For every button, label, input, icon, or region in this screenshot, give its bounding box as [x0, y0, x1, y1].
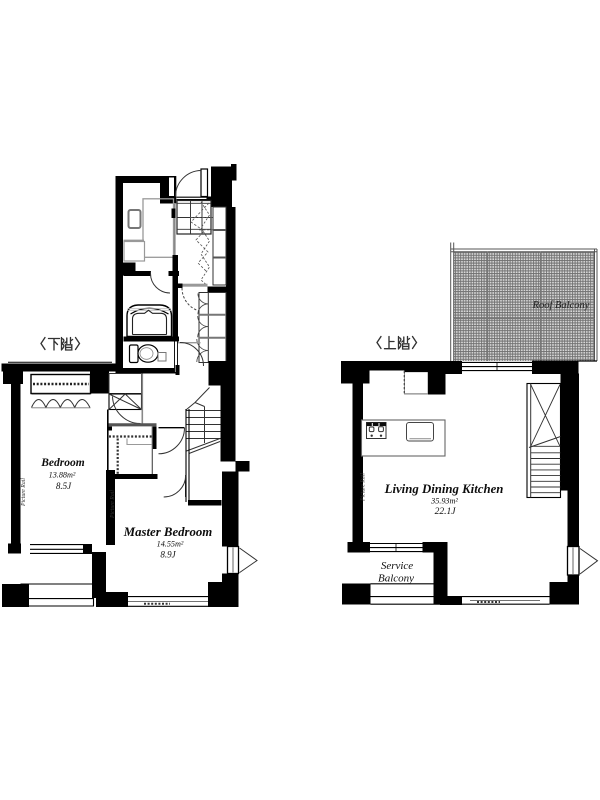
svg-text:Roof Balcony: Roof Balcony [532, 300, 590, 311]
svg-text:Living Dining Kitchen: Living Dining Kitchen [384, 482, 504, 496]
svg-text:8.9J: 8.9J [160, 550, 176, 560]
svg-text:13.88m²: 13.88m² [49, 471, 76, 480]
svg-text:22.1J: 22.1J [435, 507, 457, 517]
svg-text:Service: Service [381, 560, 413, 572]
svg-text:Picture Rail: Picture Rail [21, 478, 27, 507]
svg-text:Picture Rail: Picture Rail [361, 473, 367, 502]
svg-text:Bedroom: Bedroom [40, 457, 85, 469]
svg-text:Balcony: Balcony [378, 573, 414, 585]
svg-text:Master Bedroom: Master Bedroom [123, 525, 213, 539]
svg-text:35.93m²: 35.93m² [430, 497, 458, 506]
svg-text:8.5J: 8.5J [56, 481, 72, 491]
svg-text:Picture Rail: Picture Rail [110, 490, 116, 519]
svg-text:14.55m²: 14.55m² [157, 540, 184, 549]
